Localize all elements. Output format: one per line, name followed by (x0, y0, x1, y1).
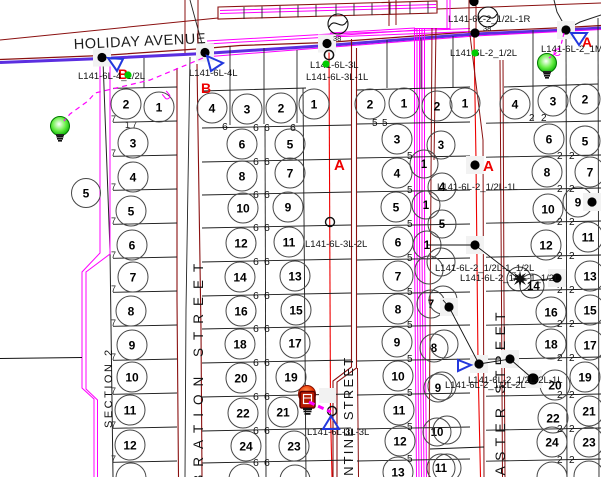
svg-text:7: 7 (111, 386, 116, 396)
svg-text:A: A (334, 157, 345, 174)
svg-text:6: 6 (129, 239, 136, 253)
svg-text:8: 8 (239, 170, 246, 184)
svg-text:6: 6 (253, 391, 259, 403)
svg-text:4: 4 (130, 171, 137, 185)
svg-text:2: 2 (569, 390, 575, 401)
svg-text:6: 6 (264, 357, 270, 369)
svg-text:2: 2 (278, 102, 285, 116)
svg-text:9: 9 (285, 201, 292, 215)
svg-text:10: 10 (236, 202, 250, 216)
svg-text:L141-6L-4_1/2L: L141-6L-4_1/2L (78, 71, 145, 82)
svg-text:6: 6 (264, 156, 270, 168)
svg-text:5: 5 (407, 454, 413, 465)
svg-text:3: 3 (394, 133, 401, 147)
svg-text:2: 2 (557, 151, 563, 162)
svg-text:L141-6L-3L-2L: L141-6L-3L-2L (305, 239, 367, 250)
svg-text:L141-6L-2_1/2L-1L: L141-6L-2_1/2L-1L (437, 182, 518, 193)
svg-text:10: 10 (125, 371, 139, 385)
svg-text:L141-6L-2_1M: L141-6L-2_1M (541, 44, 601, 55)
svg-text:5: 5 (407, 354, 413, 365)
svg-text:7: 7 (111, 182, 116, 192)
svg-text:10: 10 (541, 203, 555, 217)
svg-text:6: 6 (253, 122, 259, 134)
svg-text:2: 2 (582, 93, 589, 107)
svg-text:24: 24 (545, 436, 559, 450)
svg-text:2: 2 (569, 353, 575, 364)
svg-text:2: 2 (529, 113, 535, 124)
svg-text:2: 2 (557, 184, 563, 195)
svg-text:1: 1 (424, 240, 431, 252)
svg-text:2: 2 (569, 151, 575, 162)
svg-text:3: 3 (130, 137, 137, 151)
svg-text:2: 2 (557, 390, 563, 401)
svg-text:18: 18 (233, 338, 247, 352)
svg-text:1: 1 (423, 200, 430, 212)
svg-text:6: 6 (253, 222, 259, 234)
svg-text:L141-6L-2_1/2L: L141-6L-2_1/2L (450, 48, 517, 59)
svg-text:6: 6 (253, 290, 259, 302)
svg-text:6: 6 (253, 256, 259, 268)
svg-text:2: 2 (569, 285, 575, 296)
svg-text:7: 7 (287, 167, 294, 181)
svg-text:2: 2 (569, 455, 575, 466)
svg-text:20: 20 (234, 372, 248, 386)
svg-text:2: 2 (557, 217, 563, 228)
svg-text:5: 5 (407, 287, 413, 298)
svg-text:6: 6 (264, 122, 270, 134)
svg-text:21: 21 (276, 406, 290, 420)
svg-text:5: 5 (407, 320, 413, 331)
svg-text:4: 4 (512, 98, 519, 112)
svg-text:6: 6 (253, 156, 259, 168)
svg-text:5: 5 (382, 118, 388, 129)
svg-text:5: 5 (407, 422, 413, 433)
svg-text:L141-6L-2_1/2L-1R: L141-6L-2_1/2L-1R (448, 14, 531, 25)
svg-text:5: 5 (287, 138, 294, 152)
svg-text:2: 2 (569, 251, 575, 262)
svg-text:6: 6 (395, 236, 402, 250)
svg-text:17: 17 (288, 337, 302, 351)
svg-text:7: 7 (111, 352, 116, 362)
svg-text:8: 8 (544, 166, 551, 180)
svg-text:2: 2 (557, 353, 563, 364)
svg-text:5: 5 (407, 151, 413, 162)
svg-text:3: 3 (550, 95, 557, 109)
svg-text:1: 1 (156, 101, 163, 115)
svg-text:2: 2 (569, 184, 575, 195)
svg-text:7: 7 (587, 166, 594, 180)
svg-text:L141-6L-4L: L141-6L-4L (189, 68, 238, 79)
svg-text:7: 7 (111, 148, 116, 158)
svg-text:9: 9 (394, 336, 401, 350)
svg-text:5: 5 (393, 201, 400, 215)
svg-text:B: B (201, 80, 211, 96)
svg-text:6: 6 (222, 121, 228, 133)
svg-text:2: 2 (557, 319, 563, 330)
svg-text:38: 38 (483, 24, 491, 33)
svg-text:6: 6 (264, 222, 270, 234)
svg-text:23: 23 (287, 440, 301, 454)
svg-text:38: 38 (333, 34, 341, 43)
svg-text:5: 5 (83, 187, 90, 201)
svg-text:5: 5 (128, 205, 135, 219)
svg-text:18: 18 (544, 338, 558, 352)
svg-text:6: 6 (546, 133, 553, 147)
svg-text:5: 5 (439, 219, 446, 231)
svg-text:3: 3 (438, 140, 444, 152)
svg-text:6: 6 (253, 357, 259, 369)
svg-text:6: 6 (253, 425, 259, 437)
svg-text:8: 8 (395, 303, 402, 317)
svg-text:11: 11 (124, 404, 137, 418)
svg-text:23: 23 (582, 436, 596, 450)
svg-text:2: 2 (367, 98, 374, 112)
svg-text:13: 13 (288, 270, 302, 284)
svg-text:16: 16 (544, 306, 558, 320)
svg-text:6: 6 (253, 457, 259, 469)
svg-text:6: 6 (264, 256, 270, 268)
svg-text:6: 6 (253, 323, 259, 335)
svg-text:5: 5 (407, 219, 413, 230)
svg-text:2: 2 (123, 98, 130, 112)
svg-text:2: 2 (569, 319, 575, 330)
svg-text:7: 7 (111, 284, 116, 294)
svg-text:24: 24 (239, 440, 253, 454)
svg-text:8: 8 (128, 305, 135, 319)
svg-text:11: 11 (582, 231, 595, 245)
svg-text:L141-6L-2_1/2L-1_1/2L: L141-6L-2_1/2L-1_1/2L (460, 273, 559, 284)
svg-text:L141-6L-2_1/2L-2L: L141-6L-2_1/2L-2L (445, 380, 526, 391)
svg-text:6: 6 (290, 122, 296, 134)
svg-text:5: 5 (407, 253, 413, 264)
svg-text:1: 1 (401, 97, 408, 111)
svg-text:7: 7 (111, 454, 116, 464)
svg-text:VALENTINE STREET: VALENTINE STREET (341, 356, 356, 477)
svg-text:4: 4 (394, 167, 401, 181)
svg-text:L141-6L-3L: L141-6L-3L (310, 60, 359, 71)
svg-text:2: 2 (541, 113, 547, 124)
svg-text:1: 1 (125, 120, 130, 130)
svg-text:A: A (483, 158, 494, 175)
svg-text:11: 11 (435, 463, 448, 475)
svg-text:6: 6 (239, 138, 246, 152)
svg-text:12: 12 (393, 435, 407, 449)
svg-text:7: 7 (395, 270, 402, 284)
svg-text:9: 9 (435, 383, 441, 395)
svg-text:5: 5 (407, 388, 413, 399)
svg-text:11: 11 (283, 236, 296, 250)
svg-text:19: 19 (284, 371, 298, 385)
svg-text:7: 7 (111, 114, 116, 124)
svg-text:9: 9 (129, 339, 136, 353)
svg-text:2: 2 (569, 217, 575, 228)
svg-text:6: 6 (264, 323, 270, 335)
svg-text:7: 7 (132, 120, 137, 130)
svg-text:12: 12 (123, 439, 137, 453)
svg-text:6: 6 (264, 425, 270, 437)
svg-text:15: 15 (583, 304, 597, 318)
svg-text:11: 11 (393, 404, 406, 418)
svg-text:17: 17 (583, 339, 597, 353)
svg-text:5: 5 (582, 135, 589, 149)
svg-text:6: 6 (264, 189, 270, 201)
svg-text:12: 12 (539, 239, 553, 253)
svg-text:1: 1 (311, 98, 318, 112)
svg-text:10: 10 (431, 427, 444, 439)
svg-text:2: 2 (434, 100, 441, 114)
svg-text:3: 3 (244, 103, 251, 117)
svg-text:5: 5 (372, 118, 378, 129)
svg-text:13: 13 (583, 270, 597, 284)
svg-text:1: 1 (421, 159, 428, 171)
svg-text:6: 6 (264, 391, 270, 403)
svg-text:7: 7 (130, 271, 137, 285)
svg-text:2: 2 (569, 424, 575, 435)
svg-text:13: 13 (391, 466, 405, 477)
svg-text:12: 12 (234, 237, 248, 251)
svg-text:8: 8 (431, 343, 438, 355)
svg-text:14: 14 (233, 271, 247, 285)
svg-text:EASTER STREET: EASTER STREET (492, 307, 508, 477)
svg-text:22: 22 (236, 407, 250, 421)
svg-text:21: 21 (582, 405, 596, 419)
svg-text:2: 2 (557, 424, 563, 435)
svg-text:L141-6L-3L-1L: L141-6L-3L-1L (306, 72, 368, 83)
svg-text:15: 15 (289, 304, 303, 318)
svg-text:4: 4 (209, 102, 216, 116)
svg-text:7: 7 (111, 318, 116, 328)
svg-text:7: 7 (111, 216, 116, 226)
svg-text:6: 6 (253, 189, 259, 201)
svg-text:6: 6 (264, 290, 270, 302)
svg-text:6: 6 (264, 457, 270, 469)
svg-text:5: 5 (407, 185, 413, 196)
svg-text:CELEBRATION STREET: CELEBRATION STREET (191, 256, 206, 477)
svg-text:19: 19 (578, 371, 592, 385)
svg-text:7: 7 (111, 250, 116, 260)
svg-text:1: 1 (462, 97, 469, 111)
svg-text:10: 10 (391, 370, 405, 384)
svg-text:7: 7 (111, 420, 116, 430)
svg-text:16: 16 (234, 305, 248, 319)
svg-text:2: 2 (557, 455, 563, 466)
svg-text:9: 9 (575, 196, 582, 210)
svg-text:2: 2 (557, 251, 563, 262)
